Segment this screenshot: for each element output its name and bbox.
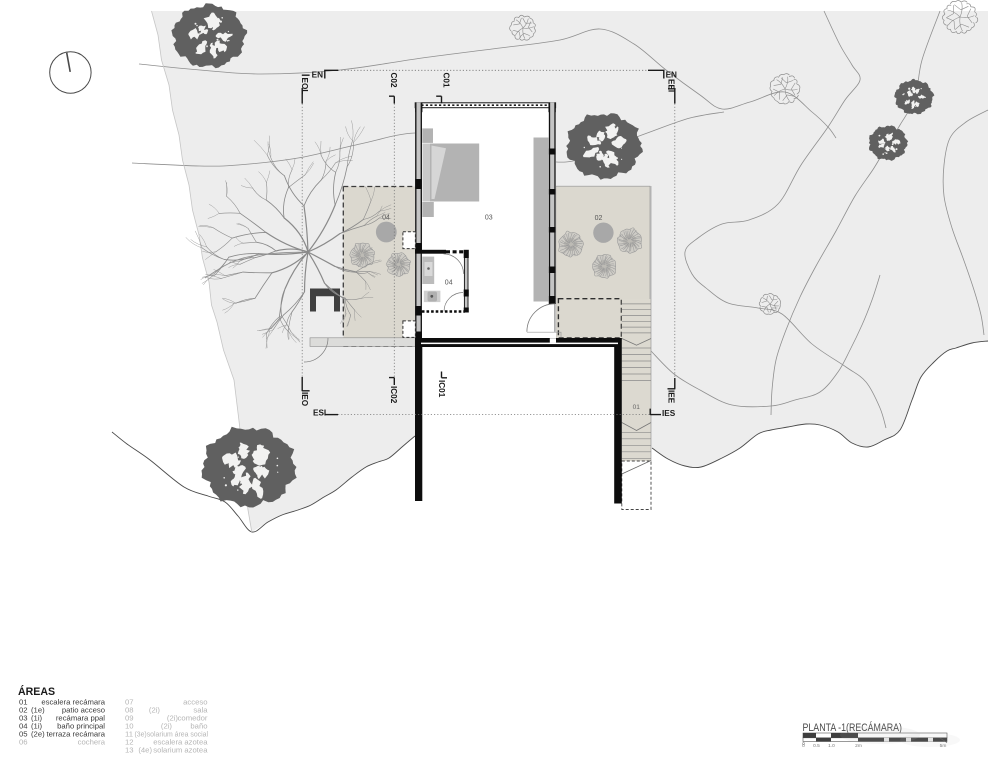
svg-text:(2i): (2i) [161, 721, 173, 730]
svg-text:(4e): (4e) [138, 745, 152, 754]
svg-text:0.5: 0.5 [813, 743, 820, 749]
svg-text:02: 02 [595, 215, 603, 222]
svg-text:06: 06 [19, 737, 28, 746]
svg-text:EOL: EOL [300, 78, 309, 95]
svg-text:baño: baño [190, 721, 207, 730]
svg-text:IC02: IC02 [389, 386, 398, 404]
svg-text:ESI: ESI [313, 409, 326, 418]
svg-text:EEI: EEI [666, 79, 675, 92]
svg-text:cochera: cochera [78, 737, 106, 746]
svg-text:solarium azotea: solarium azotea [153, 745, 208, 754]
svg-text:C01: C01 [442, 73, 451, 88]
svg-text:(2e): (2e) [31, 729, 45, 738]
svg-text:2m: 2m [855, 743, 862, 749]
svg-text:IC01: IC01 [437, 380, 446, 398]
svg-text:ÁREAS: ÁREAS [18, 685, 55, 698]
svg-text:C02: C02 [389, 73, 398, 88]
svg-text:IEO: IEO [300, 392, 309, 407]
svg-text:(2i): (2i) [149, 705, 161, 714]
svg-text:1.0: 1.0 [828, 743, 835, 749]
svg-text:EN: EN [312, 71, 323, 80]
svg-text:03: 03 [485, 215, 493, 222]
svg-text:01: 01 [633, 404, 641, 411]
svg-text:IEE: IEE [666, 390, 675, 404]
svg-text:13: 13 [125, 745, 134, 754]
svg-text:IES: IES [662, 409, 676, 418]
svg-text:04: 04 [445, 280, 453, 287]
